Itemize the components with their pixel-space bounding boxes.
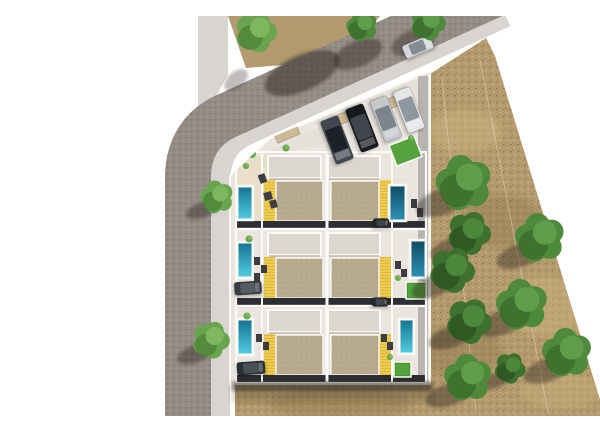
entry-roof-slab-1 xyxy=(268,310,321,332)
tree-foliage-glint xyxy=(459,175,473,189)
car-carport-left-upper xyxy=(233,281,263,298)
aerial-site-plan-render xyxy=(40,16,600,416)
patio-furniture-8 xyxy=(411,199,417,208)
car-carport-left-upper-hood-highlight xyxy=(255,283,260,292)
tree-foliage-glint xyxy=(465,314,476,325)
shrub-highlight-5 xyxy=(397,276,400,279)
swimming-pool-right xyxy=(410,240,426,278)
tree-foliage-glint xyxy=(562,346,574,358)
entry-slab-shadow-2 xyxy=(329,255,379,257)
tree-foliage-glint xyxy=(465,227,476,238)
patio-furniture-13 xyxy=(387,342,393,350)
shrub-highlight-2 xyxy=(245,164,248,167)
main-roof-texture-2 xyxy=(331,258,379,298)
tree-foliage-glint xyxy=(463,371,475,383)
patio-furniture-7 xyxy=(263,342,269,350)
entry-slab-shadow-1 xyxy=(269,255,320,257)
entry-slab-shadow-1 xyxy=(269,332,320,334)
tree-foliage-glint xyxy=(359,22,367,30)
shaded-facade-band xyxy=(236,298,426,306)
swimming-pool-left xyxy=(237,319,253,355)
shrub-highlight-1 xyxy=(285,145,289,149)
field-patch-0 xyxy=(427,109,503,153)
shrub-highlight-6 xyxy=(389,355,392,358)
car-carport-right-upper-glass xyxy=(377,220,385,226)
patio-furniture-5 xyxy=(254,273,260,281)
entry-roof-slab-2 xyxy=(328,310,380,332)
tree-foliage-glint xyxy=(448,263,459,274)
site-plan-canvas xyxy=(40,16,600,416)
car-carport-left-upper-glass xyxy=(240,283,255,294)
tree-foliage-glint xyxy=(507,364,515,372)
main-roof-texture-1 xyxy=(276,335,323,375)
shrub-highlight-4 xyxy=(246,313,250,317)
entry-slab-shadow-2 xyxy=(329,178,379,180)
patio-furniture-3 xyxy=(254,257,260,265)
terrace-awning-slats-2 xyxy=(379,257,391,300)
building-shadow-layer xyxy=(232,382,434,402)
swimming-pool-right xyxy=(389,185,406,221)
car-carport-left-lower-glass xyxy=(243,363,258,374)
tree-foliage-glint xyxy=(207,335,216,344)
main-roof-texture-1 xyxy=(276,258,323,298)
swimming-pool-right xyxy=(399,319,414,354)
building-shadow-1 xyxy=(232,382,434,402)
patio-furniture-11 xyxy=(401,269,407,277)
garden-lawn xyxy=(394,362,411,377)
entry-roof-slab-2 xyxy=(328,233,380,255)
patio-furniture-12 xyxy=(381,334,387,342)
main-roof-texture-2 xyxy=(331,181,379,221)
patio-furniture-6 xyxy=(256,334,262,342)
tree-foliage-glint xyxy=(252,26,262,36)
patio-furniture-4 xyxy=(261,265,267,273)
entry-slab-shadow-1 xyxy=(269,178,320,180)
patio-furniture-10 xyxy=(395,261,401,269)
main-roof-texture-2 xyxy=(331,335,379,375)
car-carport-right-upper xyxy=(372,219,390,230)
entry-slab-shadow-2 xyxy=(329,332,379,334)
car-carport-right-lower xyxy=(371,298,389,309)
car-carport-left-lower-hood-highlight xyxy=(258,363,263,372)
terrace-awning-slats-1 xyxy=(264,257,276,300)
car-carport-left-lower xyxy=(236,360,267,377)
car-carport-right-lower-hood-highlight xyxy=(384,300,387,305)
swimming-pool-left xyxy=(237,186,253,220)
entry-roof-slab-1 xyxy=(268,156,321,178)
tree-foliage-glint xyxy=(425,18,434,27)
tree-foliage-glint xyxy=(214,192,222,200)
tree-foliage-glint xyxy=(535,231,547,243)
car-carport-right-lower-glass xyxy=(376,299,384,305)
swimming-pool-left xyxy=(237,242,253,278)
entry-roof-slab-1 xyxy=(268,233,321,255)
tree-foliage-glint xyxy=(517,298,530,311)
shrub-highlight-3 xyxy=(248,236,252,240)
shrub-highlight-7 xyxy=(410,136,413,139)
car-carport-right-upper-hood-highlight xyxy=(385,221,388,226)
main-roof-texture-1 xyxy=(276,181,323,221)
